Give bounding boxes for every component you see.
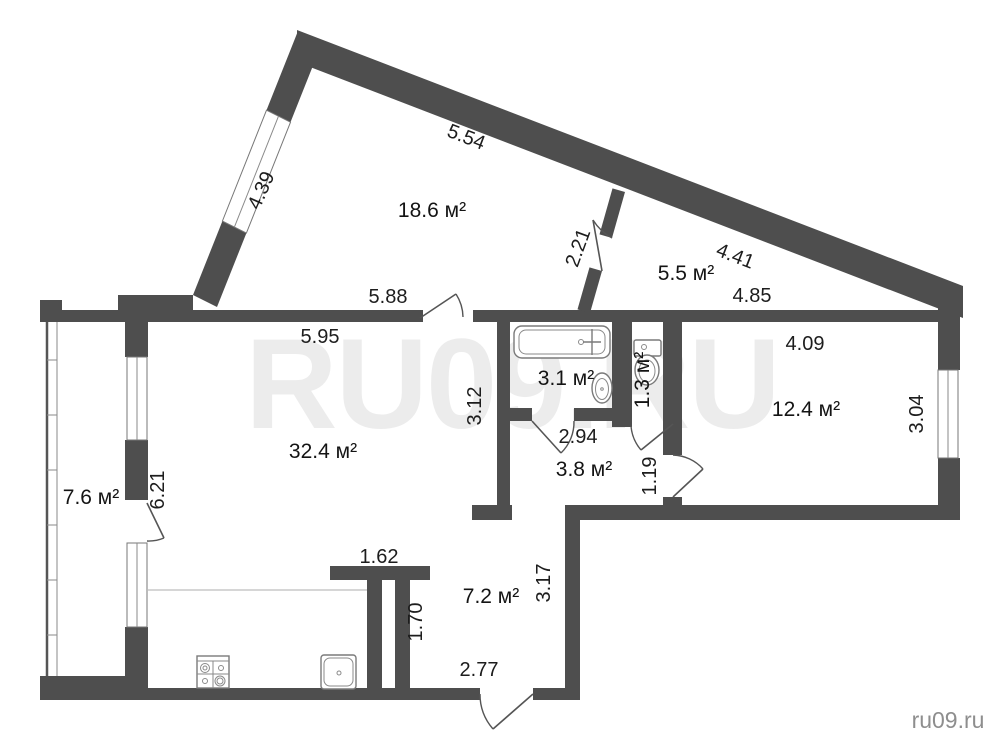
- dim-bedroom-height: 3.04: [906, 395, 928, 434]
- wall-partition-post-left: [367, 580, 382, 692]
- wall-right-lower: [938, 458, 960, 520]
- door-bedroom: [673, 455, 703, 497]
- balcony-glazing: [47, 322, 57, 676]
- window-bedroom: [938, 370, 958, 458]
- room-label-bedroom: 12.4 м²: [772, 398, 840, 421]
- wall-balcony-top-corner: [40, 300, 62, 322]
- wall-inner-diagonal-lower: [578, 267, 603, 313]
- wall-bath-bottom-right: [574, 408, 612, 421]
- dim-kitchen-top: 5.95: [301, 326, 340, 348]
- wall-top-horizontal-left: [40, 310, 423, 322]
- dim-kitchen-right: 3.12: [464, 387, 486, 426]
- wall-balcony-bottom: [40, 676, 130, 700]
- room-label-upper: 5.5 м²: [658, 262, 714, 285]
- wall-right-upper: [938, 300, 960, 370]
- dim-balcony-side: 6.21: [147, 471, 169, 510]
- wall-inner-diagonal-upper: [600, 188, 626, 238]
- door-entrance: [480, 694, 533, 729]
- sink-icon: [592, 373, 612, 403]
- room-label-kitchen: 32.4 м²: [289, 440, 357, 463]
- wall-stub-top-left: [118, 295, 193, 312]
- dim-hall-door: 1.19: [639, 457, 661, 496]
- dim-upper-width: 4.85: [733, 285, 772, 307]
- room-label-corridor: 7.2 м²: [463, 585, 519, 608]
- room-label-living: 18.6 м²: [398, 199, 466, 222]
- dim-partition-side: 1.70: [405, 603, 427, 642]
- wall-partition-top: [330, 566, 430, 580]
- dim-corridor-bottom: 2.77: [460, 659, 499, 681]
- wall-diagonal-right: [297, 30, 963, 318]
- dim-living-bottom: 5.88: [369, 286, 408, 308]
- floor-plan-image: RU09.RU: [0, 0, 1006, 755]
- floor-plan-svg: RU09.RU: [0, 0, 1006, 755]
- wall-balcony-inner-2: [125, 440, 148, 500]
- wall-hall-stub: [472, 505, 512, 520]
- kitchen-sink-icon: [321, 655, 356, 689]
- stove-icon: [197, 656, 229, 688]
- wall-balcony-inner-1: [125, 310, 148, 357]
- bathtub-icon: [514, 326, 610, 358]
- wall-bath-bottom-left: [497, 408, 532, 421]
- dim-bedroom-width: 4.09: [786, 333, 825, 355]
- window-balcony-1: [127, 357, 147, 440]
- room-label-bath: 3.1 м²: [538, 367, 594, 390]
- dim-partition-top: 1.62: [360, 546, 399, 568]
- wall-corridor-left: [565, 505, 580, 700]
- wall-hallway-top: [565, 505, 960, 520]
- wall-bath-wc-divider: [612, 310, 632, 427]
- dim-corridor-side: 3.17: [533, 564, 555, 603]
- window-balcony-2: [127, 543, 147, 627]
- room-label-balcony: 7.6 м²: [63, 486, 119, 509]
- doors: [147, 220, 703, 729]
- room-label-hall: 3.8 м²: [556, 458, 612, 481]
- room-label-wc: 1.3 м²: [631, 352, 654, 408]
- dim-hall-width: 2.94: [559, 426, 598, 448]
- watermark-corner: ru09.ru: [912, 707, 985, 733]
- wall-bedroom-left-upper: [663, 310, 682, 455]
- window-diagonal: [222, 110, 290, 233]
- wall-top-horizontal-right: [473, 310, 960, 322]
- dim-inner-diag: 2.21: [561, 226, 595, 270]
- wall-bottom-right: [533, 688, 580, 700]
- dim-top-diag-right: 4.41: [713, 239, 757, 273]
